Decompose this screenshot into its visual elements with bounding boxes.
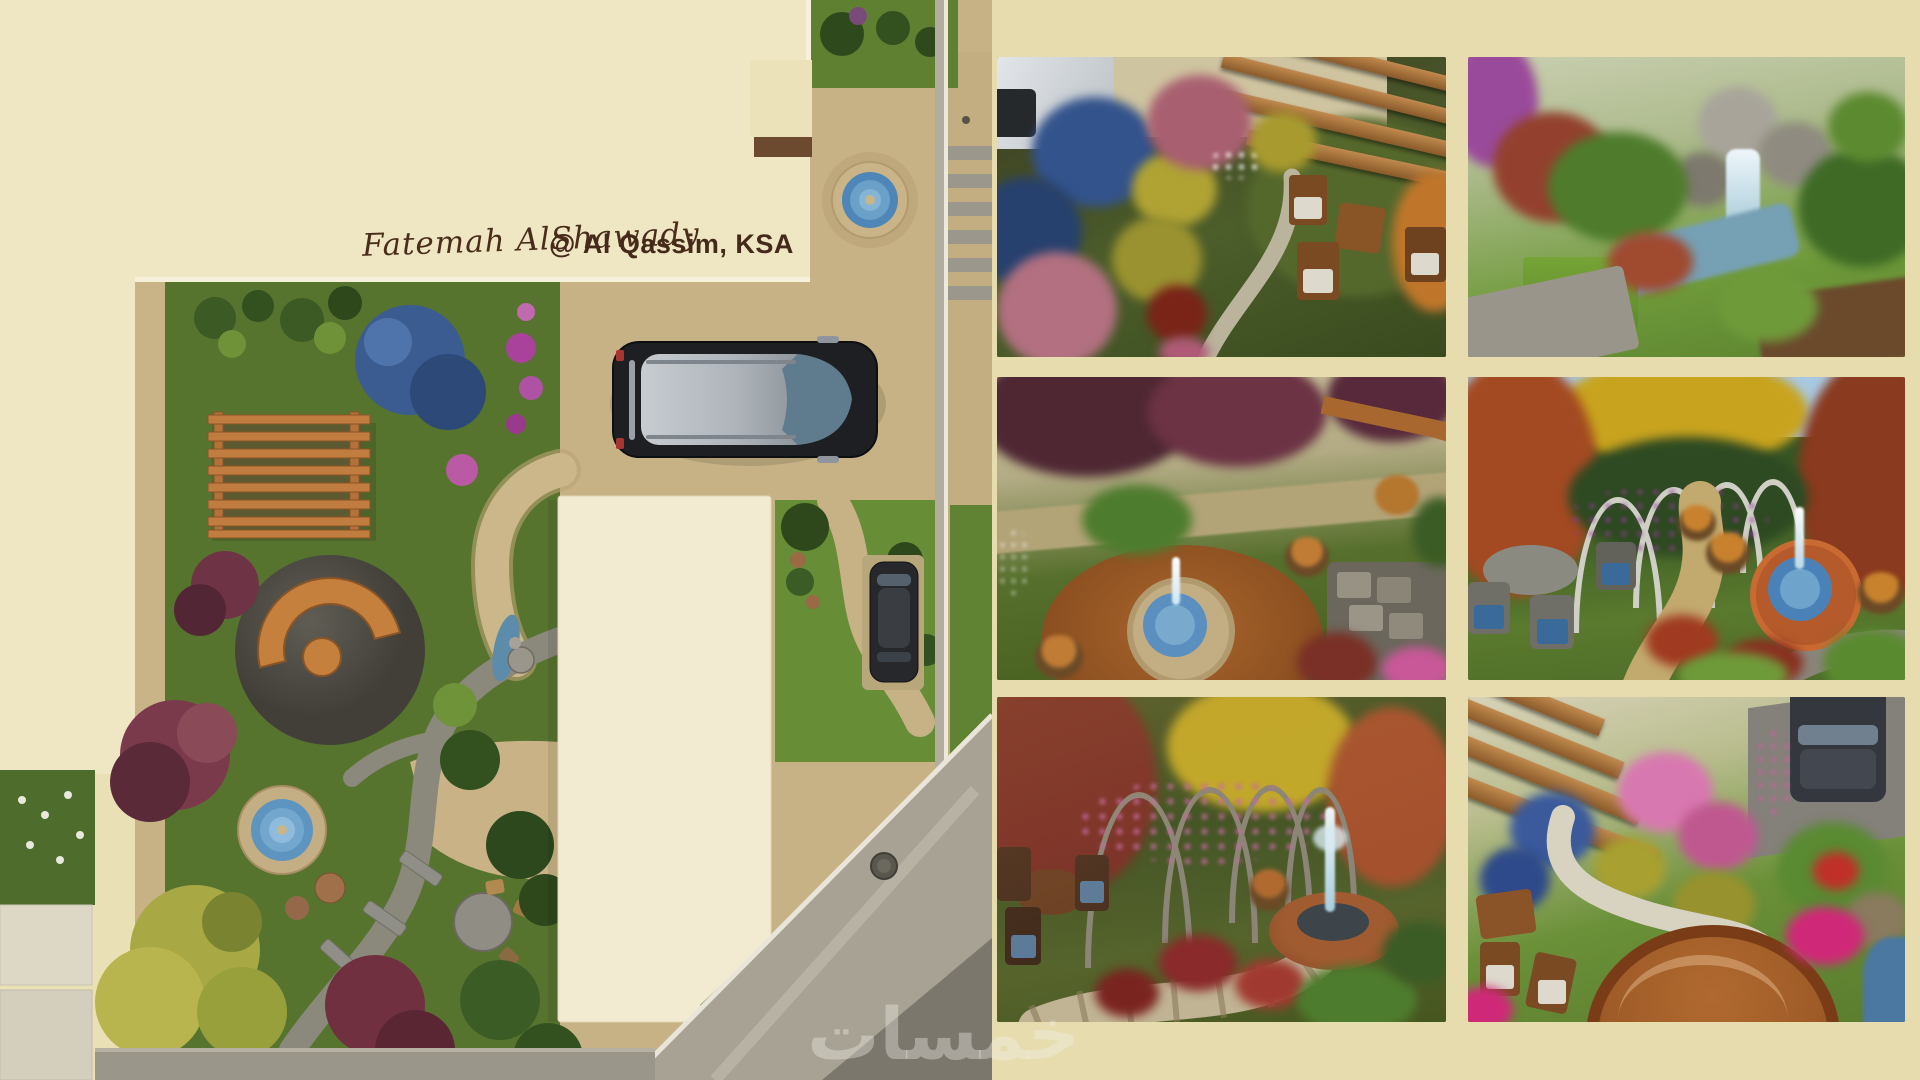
planter-box (0, 990, 92, 1080)
barrel-stool (1858, 572, 1904, 614)
side-table (1375, 475, 1419, 515)
photo-scene (997, 57, 1446, 357)
gallery-photo-dusk-garden (997, 57, 1446, 357)
parking-canopy (548, 496, 771, 1022)
stepping-pad (315, 873, 345, 903)
gallery-photo-deck-patio (1468, 697, 1905, 1022)
big-leaves (1082, 485, 1192, 555)
site-plan-drawing (0, 0, 992, 1080)
location-label: @ Al Qassim, KSA (549, 229, 794, 260)
photo-scene (997, 377, 1446, 680)
paver-path (1468, 265, 1640, 357)
round-table (303, 638, 341, 676)
barrel-stool (1678, 505, 1716, 541)
portfolio-collage: Fatemah AlShawady @ Al Qassim, KSA (0, 0, 1920, 1080)
parked-car-small (862, 555, 924, 690)
palm-fan (1828, 92, 1905, 162)
wicker-stool (1035, 635, 1083, 679)
driveway-fountain (822, 152, 918, 248)
gallery-photo-rock-waterfall (1468, 57, 1905, 357)
wood-table (1475, 888, 1537, 939)
circular-seating-area (235, 555, 425, 745)
white-flower-bed (0, 770, 95, 905)
magenta-geraniums (1786, 907, 1864, 965)
khamsat-watermark: خمسات (840, 998, 1080, 1070)
entry-canopy (754, 137, 812, 157)
barrel-stool (1706, 532, 1750, 574)
garden-fountain (238, 786, 326, 874)
parked-suv-topview (610, 336, 886, 466)
timber-pergola (208, 412, 376, 541)
photo-scene (1468, 377, 1905, 680)
stepping-pad (285, 896, 309, 920)
burgundy-maple (1147, 377, 1327, 467)
gallery-photo-courtyard-fountain (997, 377, 1446, 680)
wicker-stool (1285, 537, 1329, 577)
wood-table (1334, 202, 1386, 254)
daisies (997, 527, 1031, 597)
planter-box (0, 905, 92, 985)
fountain-spray (1795, 507, 1804, 569)
photo-scene (997, 697, 1446, 1022)
red-flowers (1147, 285, 1207, 343)
site-plan-aerial (0, 0, 992, 1080)
gallery-photo-arch-fountain (1468, 377, 1905, 680)
gallery-photo-evening-arches (997, 697, 1446, 1022)
red-flowers (1813, 852, 1859, 890)
photo-scene (1468, 697, 1905, 1022)
palm-fronds (1548, 132, 1688, 242)
photo-scene (1468, 57, 1905, 357)
fountain-spray (1172, 557, 1180, 605)
